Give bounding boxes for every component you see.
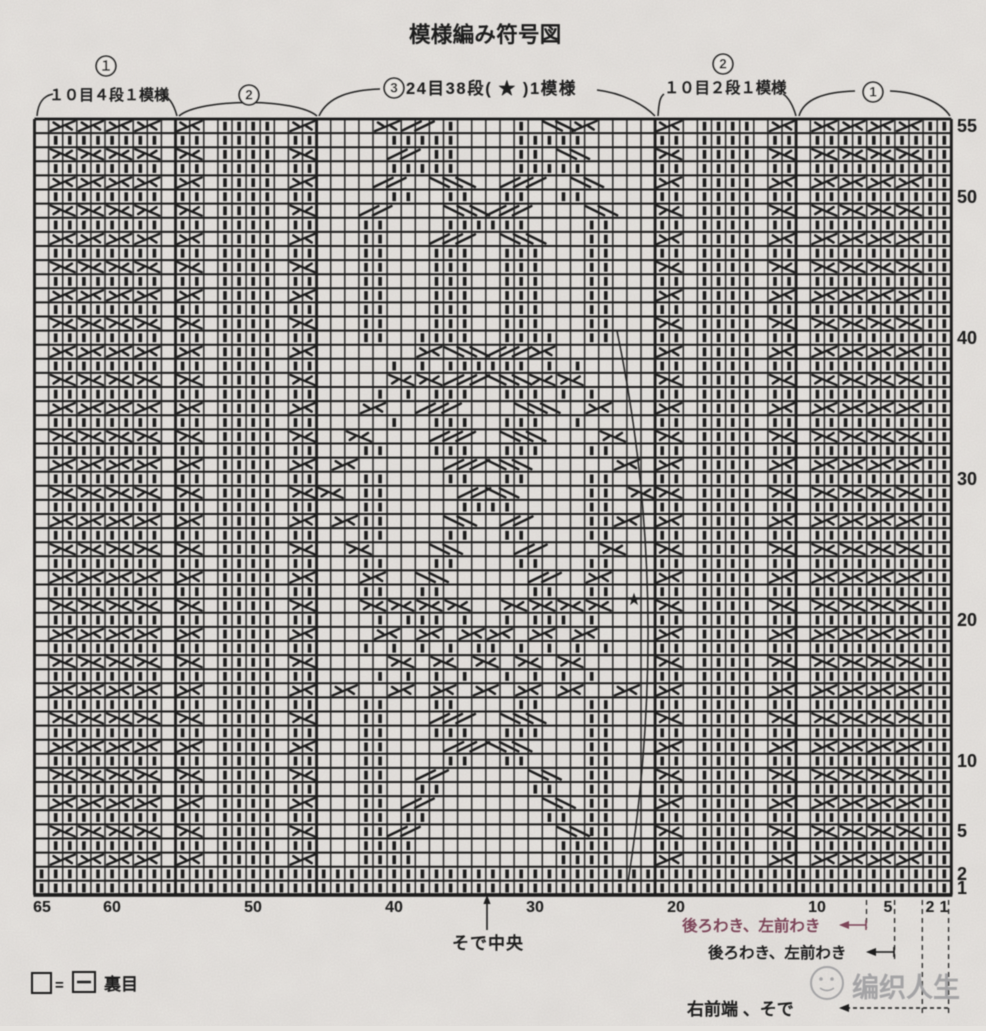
svg-text:20: 20 — [957, 610, 977, 630]
svg-text:10: 10 — [957, 751, 977, 771]
svg-text:3: 3 — [390, 81, 398, 96]
svg-text:20: 20 — [667, 899, 685, 916]
svg-text:65: 65 — [33, 899, 51, 916]
svg-text:１０目２段１模様: １０目２段１模様 — [664, 79, 787, 97]
svg-text:後ろわき、左前わき: 後ろわき、左前わき — [682, 916, 820, 935]
svg-text:1: 1 — [869, 85, 877, 100]
svg-text:後ろわき、左前わき: 後ろわき、左前わき — [708, 943, 846, 962]
svg-text:2: 2 — [245, 88, 253, 103]
svg-text:60: 60 — [103, 899, 121, 916]
svg-text:模様編み符号図: 模様編み符号図 — [409, 22, 562, 47]
svg-text:1: 1 — [957, 878, 967, 898]
svg-text:55: 55 — [957, 116, 977, 136]
svg-text:50: 50 — [957, 187, 977, 207]
svg-text:1: 1 — [940, 899, 949, 916]
svg-text:30: 30 — [957, 469, 977, 489]
svg-text:5: 5 — [884, 899, 893, 916]
svg-text:编织人生: 编织人生 — [852, 972, 960, 1003]
svg-text:40: 40 — [957, 328, 977, 348]
svg-text:2: 2 — [926, 899, 935, 916]
svg-text:10: 10 — [808, 899, 826, 916]
svg-text:裏目: 裏目 — [103, 974, 138, 994]
svg-text:5: 5 — [957, 821, 967, 841]
svg-text:40: 40 — [385, 899, 403, 916]
svg-text:=: = — [55, 977, 64, 994]
svg-text:１: １ — [99, 59, 113, 74]
svg-text:30: 30 — [526, 899, 544, 916]
svg-text:★: ★ — [626, 590, 641, 609]
svg-text:24目38段( ★ )1模様: 24目38段( ★ )1模様 — [406, 78, 577, 98]
svg-text:１０目４段１模様: １０目４段１模様 — [49, 86, 170, 104]
svg-text:そで中央: そで中央 — [452, 933, 524, 953]
svg-text:50: 50 — [244, 899, 262, 916]
svg-text:右前端 、そで: 右前端 、そで — [687, 999, 794, 1019]
svg-text:2: 2 — [719, 57, 727, 72]
